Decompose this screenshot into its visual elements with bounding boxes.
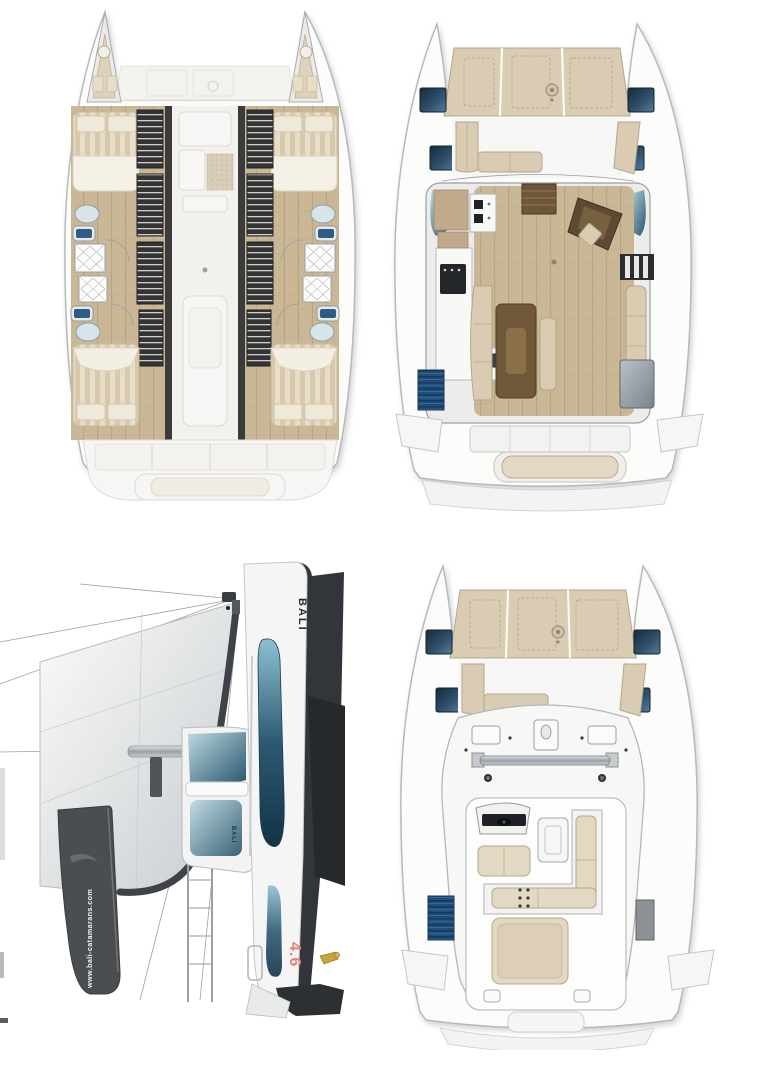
liferaft-locker: [418, 370, 444, 410]
hull-logo-text: BALI: [296, 598, 308, 632]
saloon: [426, 183, 654, 423]
front-hatch: [472, 726, 500, 744]
boom-bag: www.bali-catamarans.com: [58, 806, 120, 994]
aft-cabin-bed: [73, 344, 139, 426]
center-hatch: [538, 818, 568, 862]
aft-bench: [494, 452, 626, 482]
lower-deck-plan: [55, 8, 365, 508]
flybridge-seats-side: BALI: [182, 727, 254, 872]
anchor: [320, 952, 340, 964]
coachroof-logo-text: BALI: [230, 826, 236, 843]
forward-cockpit-seating: [452, 118, 640, 178]
stairs-starboard: [620, 254, 654, 280]
mast-structure: [188, 856, 212, 1002]
port-hull-interior: [71, 106, 172, 440]
model-number-text: 4.6: [286, 942, 303, 967]
transom-step-starboard: [668, 950, 714, 990]
side-vent: [636, 900, 654, 940]
foredeck-sunpads: [450, 590, 636, 658]
helm-bench: [478, 846, 530, 876]
sail-profile-view: www.bali-catamarans.com BALI BALI 4.6: [0, 556, 350, 1026]
mast-foot: [534, 720, 558, 750]
hull-window: [258, 639, 284, 847]
helm-console: [476, 803, 530, 834]
transom-step-port: [402, 950, 448, 990]
deck-window: [628, 88, 654, 112]
main-deck-plan: [382, 18, 717, 513]
door-handle: [552, 260, 557, 265]
appliance-unit: [470, 194, 496, 232]
oven: [440, 264, 466, 294]
aft-bench-ghost: [508, 1012, 584, 1032]
deck-window: [420, 88, 446, 112]
hull-side: BALI 4.6: [244, 562, 345, 1018]
hull-window-lower: [266, 885, 282, 976]
galley-cabinet: [434, 190, 468, 230]
deck-locker: [574, 990, 590, 1002]
website-text: www.bali-catamarans.com: [85, 889, 94, 989]
edge-fragments: [0, 768, 8, 1023]
coachroof: [442, 705, 644, 1010]
transom-step-starboard: [657, 414, 703, 452]
stairs-forward: [522, 184, 556, 214]
flybridge-deck-plan: [388, 560, 728, 1050]
foredeck-ghost: [115, 66, 295, 100]
bridgedeck-ghost: [172, 106, 238, 440]
flybridge-sunpad: [492, 918, 568, 984]
fridge: [620, 360, 654, 408]
transom-step-port: [396, 414, 442, 452]
forward-cabin-bed: [73, 112, 139, 191]
liferaft-locker: [428, 896, 454, 940]
deck-window: [426, 630, 452, 654]
deck-window: [634, 630, 660, 654]
stern-platform-ghost: [83, 440, 337, 500]
deck-locker: [484, 990, 500, 1002]
front-hatch: [588, 726, 616, 744]
catamaran-layout-sheet: www.bali-catamarans.com BALI BALI 4.6: [0, 0, 766, 1080]
foredeck-sunpads: [444, 48, 630, 116]
